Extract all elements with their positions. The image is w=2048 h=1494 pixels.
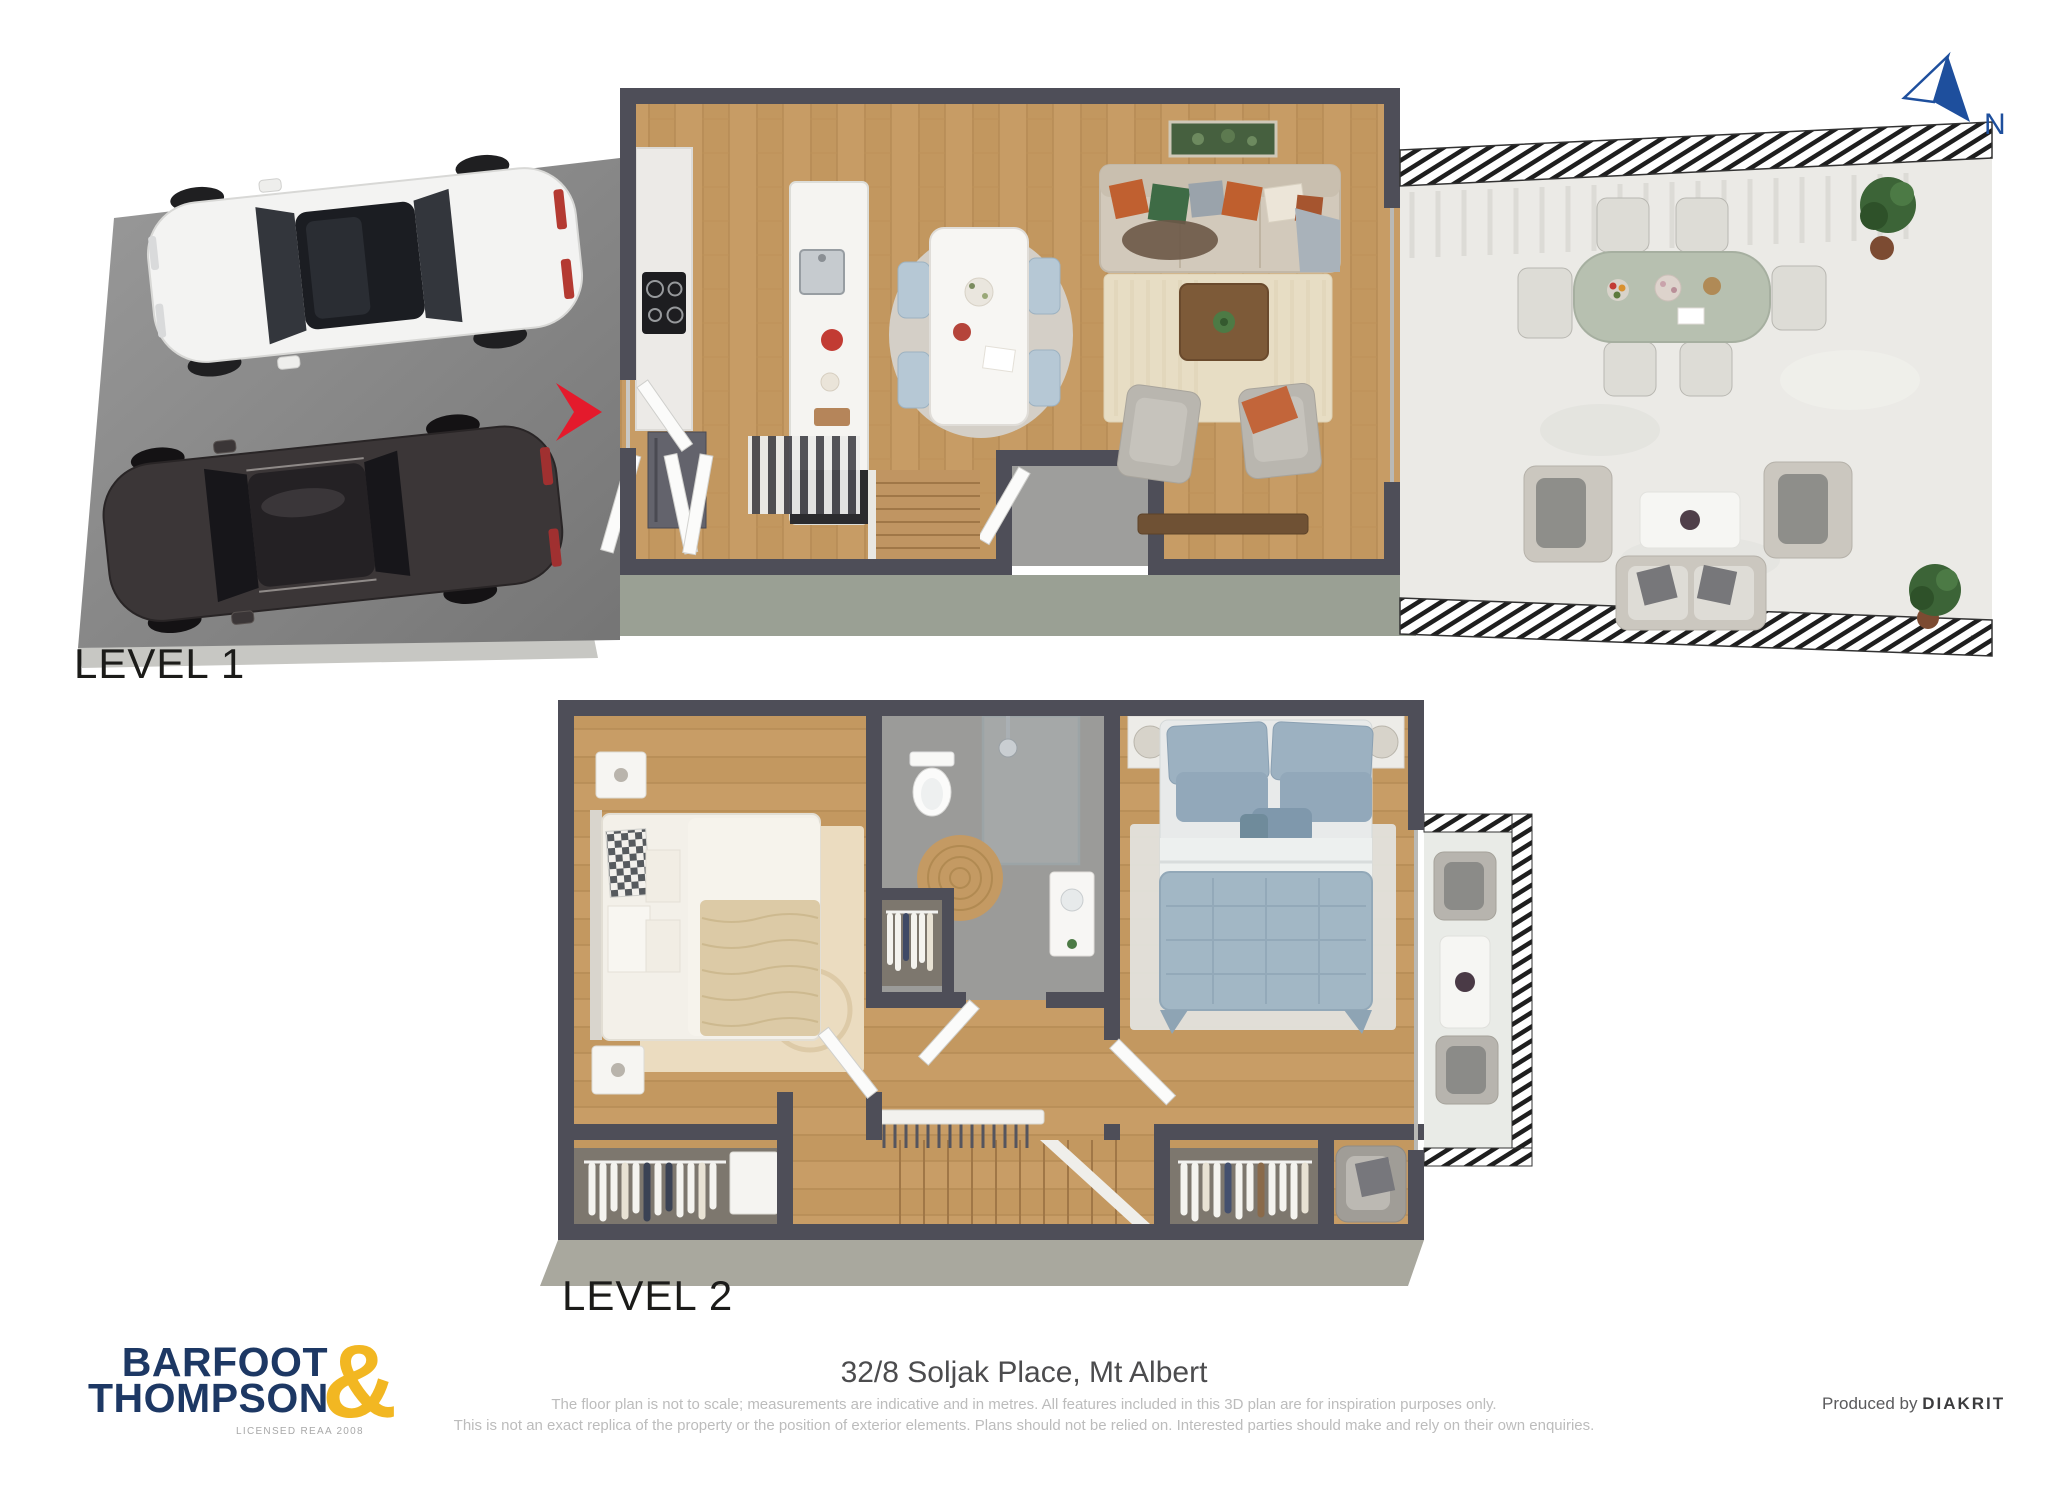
brand-ampersand-icon: & xyxy=(322,1330,397,1434)
barfoot-thompson-logo: BARFOOT THOMPSON & LICENSED REAA 2008 xyxy=(88,1344,448,1454)
dining-chair xyxy=(1028,350,1060,406)
producer-name: DIAKRIT xyxy=(1922,1394,2005,1413)
balcony-railing xyxy=(1424,1148,1532,1166)
house-slab-edge xyxy=(596,575,1416,636)
dining-table xyxy=(930,228,1028,425)
compass-north-label: N xyxy=(1984,108,2006,142)
striped-entry-rug xyxy=(748,436,860,514)
armchair xyxy=(1116,383,1202,484)
produced-by: Produced by DIAKRIT xyxy=(1822,1394,2005,1414)
cooktop xyxy=(642,272,686,334)
coffee-table xyxy=(1180,284,1268,360)
master-bedroom xyxy=(1128,716,1404,1034)
brand-line-2: THOMPSON xyxy=(88,1380,328,1416)
level-1-label: LEVEL 1 xyxy=(74,640,245,688)
house-level-1 xyxy=(601,88,1400,575)
north-arrow-icon xyxy=(1904,56,1970,122)
brand-license: LICENSED REAA 2008 xyxy=(236,1426,364,1437)
balcony xyxy=(1424,814,1532,1166)
vanity xyxy=(1050,872,1094,956)
floorplan-graphic xyxy=(0,0,2048,1494)
balcony-railing xyxy=(1512,814,1532,1166)
toilet xyxy=(910,752,954,816)
sofa xyxy=(1100,165,1340,272)
produced-by-label: Produced by xyxy=(1822,1394,1917,1413)
armchair xyxy=(1238,382,1323,479)
stair-handrail xyxy=(876,1110,1044,1124)
drawer-chest xyxy=(730,1152,778,1214)
level-2-plan xyxy=(540,700,1532,1286)
floorplan-page: LEVEL 1 LEVEL 2 N 32/8 Soljak Place, Mt … xyxy=(0,0,2048,1494)
shower xyxy=(983,716,1079,864)
level-2-label: LEVEL 2 xyxy=(562,1272,733,1320)
master-bed xyxy=(1160,720,1373,1034)
wall-art xyxy=(1170,122,1276,156)
dining-chair xyxy=(1028,258,1060,314)
level-1-plan xyxy=(78,56,1992,668)
dining-chair xyxy=(898,262,930,318)
wardrobe xyxy=(574,1148,781,1224)
dining-chair xyxy=(898,352,930,408)
bathroom xyxy=(870,716,1104,1000)
bed-double xyxy=(590,810,820,1040)
linen-closet xyxy=(870,888,954,992)
wardrobe xyxy=(1170,1148,1318,1224)
deck xyxy=(1400,122,1992,656)
stairs-level1 xyxy=(868,470,980,572)
tv-console xyxy=(1138,514,1308,534)
lounge-chair xyxy=(1336,1146,1406,1222)
